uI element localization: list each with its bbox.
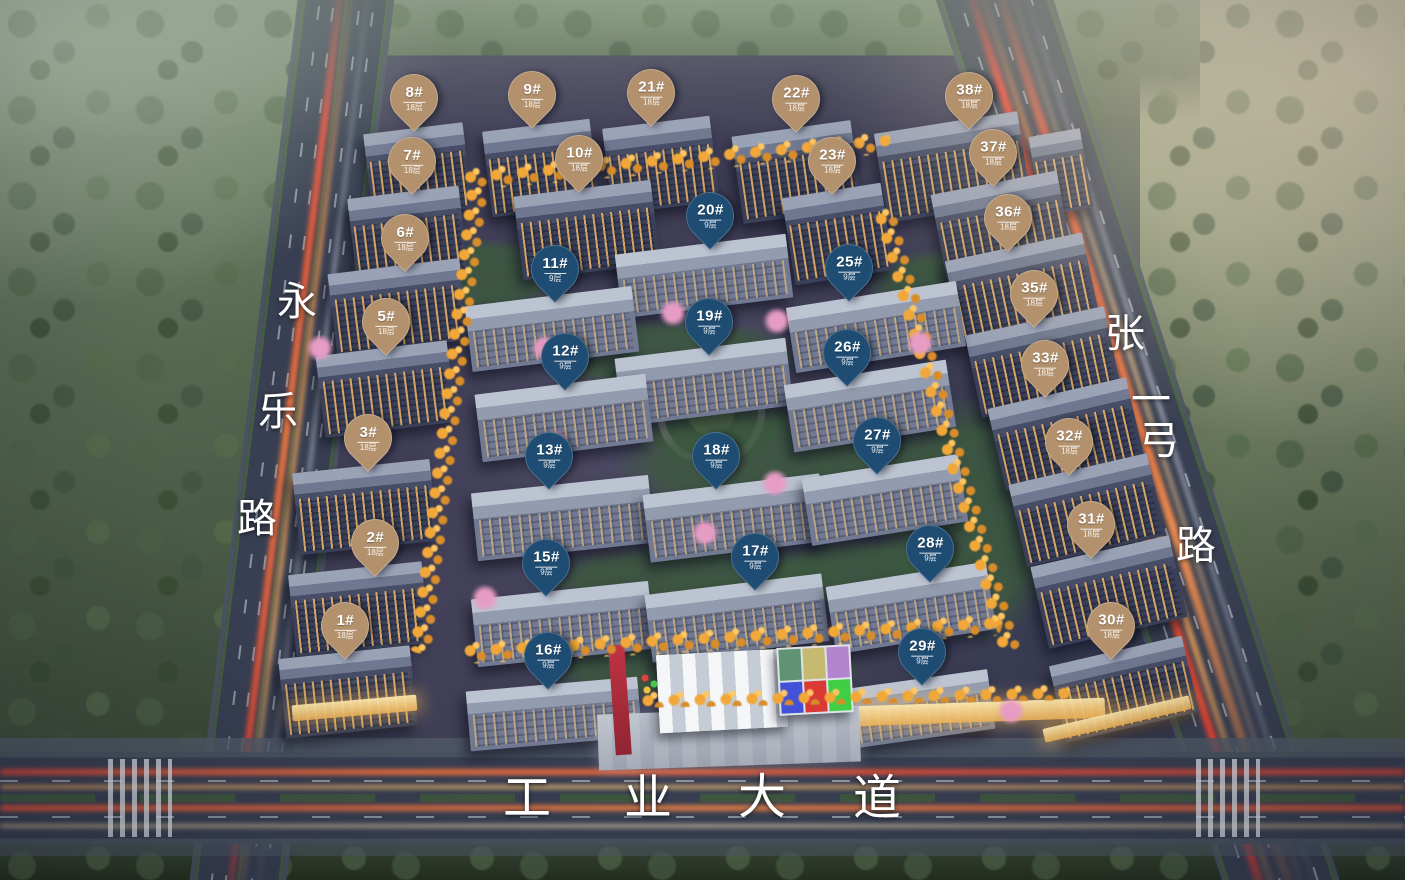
pin-content: 30#18层 xyxy=(1098,613,1125,640)
blossom-tree xyxy=(760,470,790,496)
pin-building-number: 23# xyxy=(819,148,846,163)
roof-tile xyxy=(802,647,826,679)
street-name-right-char: 弓 xyxy=(1139,408,1179,466)
pin-building-number: 17# xyxy=(742,544,769,559)
building-marker-15[interactable]: 15#9层 xyxy=(522,539,568,585)
pin-floor-count: 18层 xyxy=(1000,224,1017,232)
building-marker-21[interactable]: 21#18层 xyxy=(627,69,673,115)
pin-building-number: 20# xyxy=(697,203,724,218)
building-marker-3[interactable]: 3#18层 xyxy=(344,414,390,460)
blossom-tree xyxy=(690,520,720,546)
blossom-tree xyxy=(996,698,1026,724)
building-marker-23[interactable]: 23#18层 xyxy=(808,137,854,183)
building-marker-19[interactable]: 19#9层 xyxy=(685,298,731,344)
roof-tile xyxy=(778,649,802,681)
pin-content: 2#18层 xyxy=(364,530,386,557)
pin-building-number: 5# xyxy=(377,309,395,324)
building-marker-29[interactable]: 29#9层 xyxy=(898,628,944,674)
building-marker-35[interactable]: 35#18层 xyxy=(1010,270,1056,316)
building-marker-12[interactable]: 12#9层 xyxy=(541,333,587,379)
building-marker-32[interactable]: 32#18层 xyxy=(1045,418,1091,464)
pin-floor-count: 9层 xyxy=(559,363,571,371)
pin-building-number: 25# xyxy=(836,255,863,270)
pin-content: 37#18层 xyxy=(980,140,1007,167)
pin-building-number: 6# xyxy=(396,225,414,240)
pin-content: 11#9层 xyxy=(542,256,568,283)
pin-building-number: 10# xyxy=(566,146,593,161)
street-name-bottom-char: 大 xyxy=(738,757,786,827)
pin-floor-count: 9层 xyxy=(710,462,722,470)
street-name-left-char: 永 xyxy=(277,269,317,327)
pin-floor-count: 18层 xyxy=(1037,370,1054,378)
pin-floor-count: 9层 xyxy=(841,359,853,367)
pin-content: 13#9层 xyxy=(536,443,563,470)
pin-content: 22#18层 xyxy=(783,86,810,113)
street-name-left-char: 路 xyxy=(237,486,277,544)
pin-floor-count: 18层 xyxy=(360,444,377,452)
pin-building-number: 18# xyxy=(703,443,730,458)
pin-content: 16#9层 xyxy=(535,643,562,670)
pin-content: 10#18层 xyxy=(566,146,593,173)
building-marker-36[interactable]: 36#18层 xyxy=(984,194,1030,240)
pin-content: 23#18层 xyxy=(819,148,846,175)
pin-content: 26#9层 xyxy=(834,340,861,367)
building-marker-33[interactable]: 33#18层 xyxy=(1021,340,1067,386)
pin-content: 36#18层 xyxy=(995,205,1022,232)
street-name-right-char: 路 xyxy=(1176,513,1216,571)
pin-floor-count: 18层 xyxy=(524,101,541,109)
pin-floor-count: 9层 xyxy=(703,328,715,336)
blossom-tree xyxy=(305,335,335,361)
pin-floor-count: 18层 xyxy=(788,105,805,113)
blossom-tree xyxy=(905,330,935,356)
pin-building-number: 19# xyxy=(696,309,723,324)
pin-content: 29#9层 xyxy=(909,639,936,666)
pin-floor-count: 18层 xyxy=(961,102,978,110)
street-name-left-char: 乐 xyxy=(258,379,298,437)
pin-floor-count: 18层 xyxy=(985,159,1002,167)
pin-building-number: 13# xyxy=(536,443,563,458)
pin-building-number: 38# xyxy=(956,83,983,98)
pin-building-number: 27# xyxy=(864,428,891,443)
building-marker-9[interactable]: 9#18层 xyxy=(508,71,554,117)
pin-content: 27#9层 xyxy=(864,428,891,455)
building-marker-27[interactable]: 27#9层 xyxy=(853,417,899,463)
pin-building-number: 2# xyxy=(366,530,384,545)
pin-floor-count: 9层 xyxy=(543,462,555,470)
building-marker-7[interactable]: 7#18层 xyxy=(388,137,434,183)
street-name-bottom-char: 业 xyxy=(624,758,672,828)
pin-content: 7#18层 xyxy=(401,148,423,175)
pin-content: 32#18层 xyxy=(1056,429,1083,456)
pin-building-number: 36# xyxy=(995,205,1022,220)
pin-floor-count: 9层 xyxy=(704,222,716,230)
pin-content: 25#9层 xyxy=(836,255,863,282)
pin-building-number: 3# xyxy=(359,425,377,440)
pin-floor-count: 18层 xyxy=(824,167,841,175)
pin-content: 3#18层 xyxy=(357,425,379,452)
blossom-tree xyxy=(470,585,500,611)
pin-building-number: 22# xyxy=(783,86,810,101)
building-marker-18[interactable]: 18#9层 xyxy=(692,432,738,478)
lane-line xyxy=(0,780,1405,782)
pin-building-number: 28# xyxy=(917,536,944,551)
building-marker-38[interactable]: 38#18层 xyxy=(945,72,991,118)
building-marker-31[interactable]: 31#18层 xyxy=(1067,501,1113,547)
pin-building-number: 26# xyxy=(834,340,861,355)
building-marker-28[interactable]: 28#9层 xyxy=(906,525,952,571)
pin-building-number: 16# xyxy=(535,643,562,658)
pin-floor-count: 18层 xyxy=(1026,300,1043,308)
building-marker-17[interactable]: 17#9层 xyxy=(731,533,777,579)
pin-floor-count: 18层 xyxy=(571,165,588,173)
sidewalk-south xyxy=(0,844,1405,856)
pin-floor-count: 18层 xyxy=(643,99,660,107)
pin-floor-count: 9层 xyxy=(924,555,936,563)
building-marker-22[interactable]: 22#18层 xyxy=(772,75,818,121)
pin-building-number: 8# xyxy=(405,85,423,100)
street-name-bottom-char: 工 xyxy=(503,758,551,828)
pin-building-number: 33# xyxy=(1032,351,1059,366)
pin-building-number: 29# xyxy=(909,639,936,654)
pin-building-number: 7# xyxy=(403,148,421,163)
building-marker-2[interactable]: 2#18层 xyxy=(351,519,397,565)
blossom-tree xyxy=(762,308,792,334)
masterplan-aerial-view: 1#18层2#18层3#18层5#18层6#18层7#18层8#18层9#18层… xyxy=(0,0,1405,880)
building-marker-11[interactable]: 11#9层 xyxy=(531,245,577,291)
pin-floor-count: 18层 xyxy=(367,549,384,557)
street-name-right-char: 张 xyxy=(1105,301,1145,359)
pin-content: 38#18层 xyxy=(956,83,983,110)
pin-content: 17#9层 xyxy=(742,544,769,571)
crosswalk xyxy=(108,759,172,836)
pin-building-number: 21# xyxy=(638,80,665,95)
pin-content: 1#18层 xyxy=(334,613,356,640)
pin-content: 31#18层 xyxy=(1078,512,1105,539)
light-trail xyxy=(0,805,1405,811)
building-marker-20[interactable]: 20#9层 xyxy=(686,192,732,238)
pin-content: 33#18层 xyxy=(1032,351,1059,378)
pin-content: 8#18层 xyxy=(403,85,425,112)
pin-building-number: 1# xyxy=(336,613,354,628)
pin-content: 21#18层 xyxy=(638,80,665,107)
pin-floor-count: 18层 xyxy=(397,244,414,252)
pin-building-number: 30# xyxy=(1098,613,1125,628)
pin-floor-count: 18层 xyxy=(337,632,354,640)
pin-floor-count: 18层 xyxy=(1061,448,1078,456)
pin-building-number: 11# xyxy=(542,256,568,271)
building-marker-26[interactable]: 26#9层 xyxy=(823,329,869,375)
light-trail xyxy=(0,824,1405,828)
pin-content: 28#9层 xyxy=(917,536,944,563)
pin-floor-count: 9层 xyxy=(749,563,761,571)
pin-building-number: 9# xyxy=(523,82,541,97)
pin-floor-count: 9层 xyxy=(916,658,928,666)
pin-floor-count: 9层 xyxy=(871,447,883,455)
pin-floor-count: 18层 xyxy=(406,104,423,112)
building-marker-25[interactable]: 25#9层 xyxy=(825,244,871,290)
light-trail xyxy=(0,785,1405,789)
roof-tile xyxy=(826,646,850,678)
pin-building-number: 31# xyxy=(1078,512,1105,527)
building-marker-1[interactable]: 1#18层 xyxy=(321,602,367,648)
pin-content: 20#9层 xyxy=(697,203,724,230)
light-trail xyxy=(0,769,1405,775)
pin-building-number: 15# xyxy=(533,550,560,565)
lane-line xyxy=(0,816,1405,818)
building-marker-6[interactable]: 6#18层 xyxy=(381,214,427,260)
pin-building-number: 32# xyxy=(1056,429,1083,444)
building-marker-5[interactable]: 5#18层 xyxy=(362,298,408,344)
building-marker-16[interactable]: 16#9层 xyxy=(524,632,570,678)
pin-content: 18#9层 xyxy=(703,443,730,470)
pin-content: 35#18层 xyxy=(1021,281,1048,308)
pin-content: 5#18层 xyxy=(375,309,397,336)
pin-content: 9#18层 xyxy=(521,82,543,109)
pin-building-number: 35# xyxy=(1021,281,1048,296)
pin-content: 19#9层 xyxy=(696,309,723,336)
residential-tower xyxy=(278,645,418,738)
pin-floor-count: 9层 xyxy=(549,275,561,283)
pin-building-number: 37# xyxy=(980,140,1007,155)
pin-building-number: 12# xyxy=(552,344,579,359)
building-marker-10[interactable]: 10#18层 xyxy=(555,135,601,181)
building-marker-13[interactable]: 13#9层 xyxy=(525,432,571,478)
median-strip xyxy=(0,794,1405,801)
building-marker-30[interactable]: 30#18层 xyxy=(1087,602,1133,648)
street-name-bottom-char: 道 xyxy=(853,758,901,828)
pin-floor-count: 9层 xyxy=(843,274,855,282)
pin-floor-count: 18层 xyxy=(404,167,421,175)
pin-content: 6#18层 xyxy=(394,225,416,252)
pin-content: 12#9层 xyxy=(552,344,579,371)
pin-floor-count: 9层 xyxy=(540,569,552,577)
pin-floor-count: 18层 xyxy=(1083,531,1100,539)
pin-content: 15#9层 xyxy=(533,550,560,577)
pin-floor-count: 18层 xyxy=(1103,632,1120,640)
building-marker-8[interactable]: 8#18层 xyxy=(390,74,436,120)
building-marker-37[interactable]: 37#18层 xyxy=(969,129,1015,175)
pin-floor-count: 18层 xyxy=(378,328,395,336)
crosswalk xyxy=(1196,759,1260,836)
pin-floor-count: 9层 xyxy=(542,662,554,670)
